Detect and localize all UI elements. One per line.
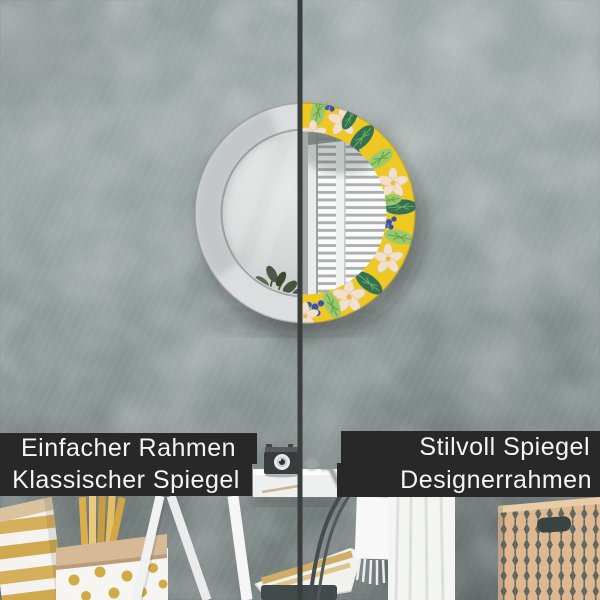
product-comparison-photo: Einfacher Rahmen Klassischer Spiegel Sti… [0,0,600,600]
grain-overlay [0,0,600,600]
left-caption-line2: Klassischer Spiegel [0,464,252,496]
left-caption-line1: Einfacher Rahmen [0,433,257,464]
scene-graphics [0,0,600,600]
right-caption-line2: Designerrahmen [337,463,600,497]
right-caption-line1: Stilvoll Spiegel [341,431,600,463]
